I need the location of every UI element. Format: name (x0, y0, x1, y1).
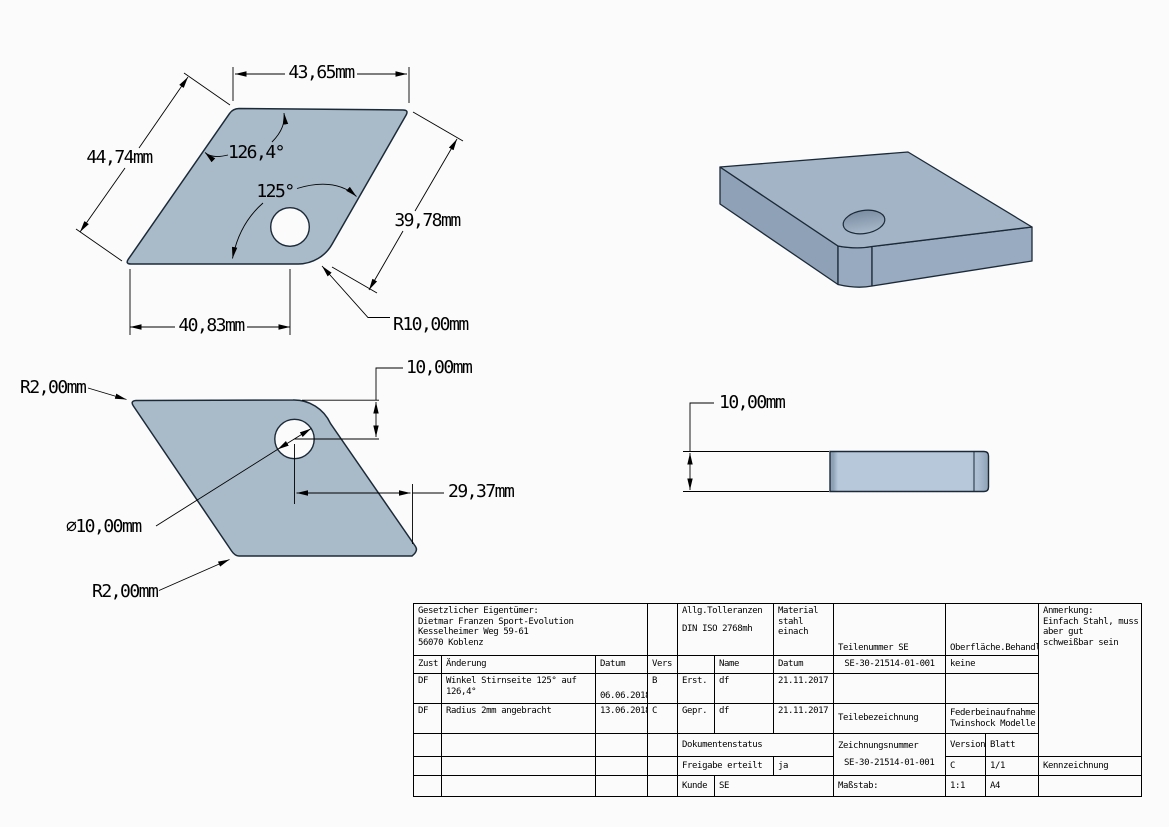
oberflaeche-label: Oberfläche.Behandl (950, 643, 1034, 654)
dimension-lines (683, 403, 829, 492)
title-block: Gesetzlicher Eigentümer: Dietmar Franzen… (413, 603, 1142, 797)
header-datum: Datum (596, 656, 648, 674)
material-line: einach (778, 627, 829, 638)
tolerances-line: DIN ISO 2768mh (682, 624, 769, 635)
dim-label-hole-offset-v: 10,00mm (406, 358, 471, 378)
owner-line: Dietmar Franzen Sport-Evolution (418, 617, 643, 628)
dim-label-side-thickness: 10,00mm (719, 393, 784, 413)
dim-label-radius-top: R2,00mm (20, 378, 85, 398)
anmerkung-line: Anmerkung: (1043, 606, 1137, 617)
owner-line: Gesetzlicher Eigentümer: (418, 606, 643, 617)
rev1-datum: 06.06.2018 (596, 674, 648, 704)
dim-label-plan-left-side: 44,74mm (59, 148, 179, 168)
header-aenderung: Änderung (442, 656, 596, 674)
empty-cell (596, 757, 648, 776)
rev2-aenderung: Radius 2mm angebracht (442, 704, 596, 734)
teilenummer-label: Teilenummer SE (838, 643, 941, 654)
dim-label-plan-top-width: 43,65mm (261, 63, 381, 83)
zeichnungsnummer-value: SE-30-21514-01-001 (838, 758, 941, 769)
empty-cell (442, 757, 596, 776)
owner-line: Kesselheimer Weg 59-61 (418, 627, 643, 638)
header-zust: Zust (414, 656, 442, 674)
version-label: Version (946, 734, 986, 757)
anmerkung-line: Einfach Stahl, muss (1043, 617, 1137, 628)
empty-cell (648, 757, 678, 776)
massstab-value: 1:1 (946, 776, 986, 796)
anmerkung-line: aber gut (1043, 627, 1137, 638)
hole (271, 208, 310, 247)
header-vers: Vers (648, 656, 678, 674)
anmerkung-cell: Anmerkung: Einfach Stahl, muss aber gut … (1039, 604, 1141, 757)
empty-cell (834, 674, 946, 704)
empty-cell (442, 776, 596, 796)
rev1-aenderung: Winkel Stirnseite 125° auf 126,4° (442, 674, 596, 704)
part-outline (132, 400, 416, 556)
owner-line: 56070 Koblenz (418, 638, 643, 649)
blatt-label: Blatt (986, 734, 1039, 757)
rev2-name: df (715, 704, 774, 734)
empty-cell (442, 734, 596, 757)
iso-view-3d (720, 152, 1032, 287)
empty-cell (678, 656, 715, 674)
empty-cell (946, 674, 1039, 704)
rev2-date: 21.11.2017 (774, 704, 834, 734)
empty-cell (414, 776, 442, 796)
plan-view-bottom (88, 368, 444, 591)
dim-label-angle-acute: 125° (215, 182, 335, 202)
rev1-date: 21.11.2017 (774, 674, 834, 704)
dim-label-corner-radius: R10,00mm (393, 315, 468, 335)
empty-cell (596, 734, 648, 757)
dim-label-radius-bottom: R2,00mm (92, 582, 157, 602)
freigabe-label: Freigabe erteilt (678, 757, 774, 776)
kennzeichnung-cell: Kennzeichnung (1039, 757, 1141, 776)
oberflaeche-value: keine (946, 656, 1039, 674)
dim-label-angle-obtuse: 126,4° (196, 143, 316, 163)
dim-label-hole-diameter: ∅10,00mm (66, 517, 141, 537)
kunde-value: SE (715, 776, 834, 796)
zeichnungsnummer-label: Zeichnungsnummer (838, 741, 941, 752)
empty-cell (648, 776, 678, 796)
dokumentenstatus-cell: Dokumentenstatus (678, 734, 834, 757)
teilebezeichnung-line: Twinshock Modelle (950, 719, 1034, 730)
blatt-value: 1/1 (986, 757, 1039, 776)
teilenummer-label-cell: Teilenummer SE (834, 604, 946, 656)
empty-cell (596, 776, 648, 796)
empty-cell (648, 604, 678, 656)
empty-cell (414, 734, 442, 757)
empty-cell (1039, 776, 1141, 796)
tolerances-cell: Allg.Tolleranzen DIN ISO 2768mh (678, 604, 774, 656)
rev2-datum: 13.06.2018 (596, 704, 648, 734)
kunde-label: Kunde (678, 776, 715, 796)
freigabe-value: ja (774, 757, 834, 776)
material-line: stahl (778, 617, 829, 628)
format-value: A4 (986, 776, 1039, 796)
dim-label-plan-bottom-width: 40,83mm (151, 316, 271, 336)
header-name: Name (715, 656, 774, 674)
dim-label-hole-offset-h: 29,37mm (448, 482, 513, 502)
rev2-zust: DF (414, 704, 442, 734)
oberflaeche-label-cell: Oberfläche.Behandl (946, 604, 1039, 656)
face-corner-round (838, 246, 872, 287)
version-value: C (946, 757, 986, 776)
side-view (683, 403, 989, 492)
tolerances-line: Allg.Tolleranzen (682, 606, 769, 617)
teilebezeichnung-label: Teilebezeichnung (834, 704, 946, 734)
drawing-sheet: 43,65mm 44,74mm 39,78mm 40,83mm R10,00mm… (0, 0, 1169, 827)
empty-cell (648, 734, 678, 757)
teilebezeichnung-line: Federbeinaufnahme (950, 708, 1034, 719)
rev1-zust: DF (414, 674, 442, 704)
anmerkung-line: schweißbar sein (1043, 638, 1137, 649)
rev2-stage: Gepr. (678, 704, 715, 734)
zeichnungsnummer-cell: Zeichnungsnummer SE-30-21514-01-001 (834, 734, 946, 776)
dim-label-plan-right-side: 39,78mm (367, 211, 487, 231)
material-line: Material (778, 606, 829, 617)
rev1-stage: Erst. (678, 674, 715, 704)
part-outline (830, 452, 989, 492)
massstab-label: Maßstab: (834, 776, 946, 796)
teilebezeichnung-value: Federbeinaufnahme Twinshock Modelle (946, 704, 1039, 734)
header-datum2: Datum (774, 656, 834, 674)
empty-cell (414, 757, 442, 776)
rev2-vers: C (648, 704, 678, 734)
rev1-vers: B (648, 674, 678, 704)
rev1-name: df (715, 674, 774, 704)
material-cell: Material stahl einach (774, 604, 834, 656)
teilenummer-value: SE-30-21514-01-001 (834, 656, 946, 674)
owner-cell: Gesetzlicher Eigentümer: Dietmar Franzen… (414, 604, 648, 656)
